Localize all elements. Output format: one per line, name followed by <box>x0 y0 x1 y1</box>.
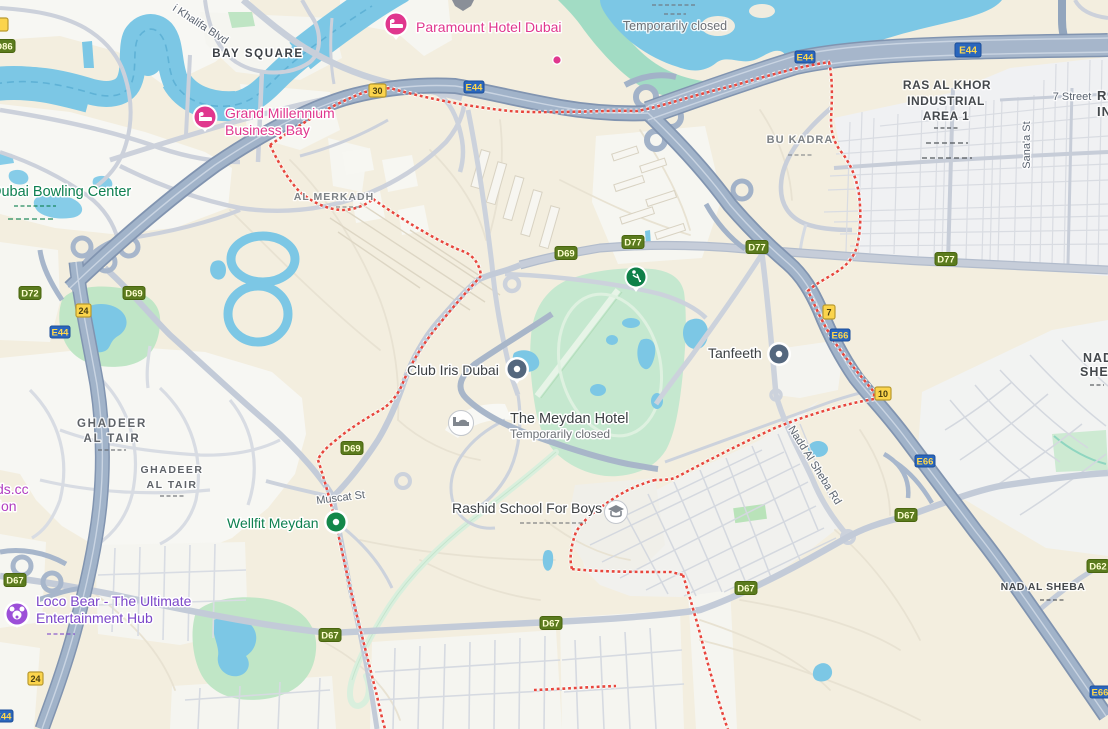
svg-text:Wellfit Meydan: Wellfit Meydan <box>227 515 319 531</box>
svg-text:GHADEER: GHADEER <box>77 418 147 430</box>
svg-text:E66: E66 <box>832 331 849 342</box>
svg-text:IN: IN <box>1097 104 1108 119</box>
svg-text:D86: D86 <box>0 42 13 53</box>
svg-text:Dubai Bowling Center: Dubai Bowling Center <box>0 184 131 200</box>
svg-text:E44: E44 <box>52 328 70 339</box>
svg-text:Rashid School For Boys: Rashid School For Boys <box>452 500 602 516</box>
svg-text:Sana'a St: Sana'a St <box>1021 121 1033 168</box>
svg-text:D67: D67 <box>542 619 559 630</box>
svg-text:D67: D67 <box>6 576 23 587</box>
svg-text:BAY SQUARE: BAY SQUARE <box>212 48 303 60</box>
svg-text:E66: E66 <box>1092 688 1108 699</box>
svg-text:Paramount Hotel Dubai: Paramount Hotel Dubai <box>416 19 562 35</box>
svg-text:BU KADRA: BU KADRA <box>767 134 834 146</box>
svg-text:24: 24 <box>78 306 88 316</box>
svg-text:D77: D77 <box>748 243 765 254</box>
svg-text:D77: D77 <box>624 238 641 249</box>
svg-text:Club Iris Dubai: Club Iris Dubai <box>407 362 499 378</box>
svg-text:D69: D69 <box>125 289 142 300</box>
svg-text:Temporarily closed: Temporarily closed <box>623 19 727 33</box>
svg-text:Loco Bear - The Ultimate: Loco Bear - The Ultimate <box>36 593 192 609</box>
svg-text:Entertainment Hub: Entertainment Hub <box>36 610 153 626</box>
svg-text:Tanfeeth: Tanfeeth <box>708 345 762 361</box>
svg-text:E44: E44 <box>0 712 12 723</box>
svg-text:10: 10 <box>878 389 888 399</box>
svg-text:GHADEER: GHADEER <box>140 464 203 476</box>
svg-text:AL TAIR: AL TAIR <box>147 479 198 491</box>
svg-text:7: 7 <box>826 308 831 318</box>
svg-text:Grand Millennium: Grand Millennium <box>225 105 335 121</box>
svg-text:D69: D69 <box>557 249 574 260</box>
svg-text:E44: E44 <box>466 83 484 94</box>
svg-text:D67: D67 <box>897 511 914 522</box>
svg-text:E44: E44 <box>959 46 977 57</box>
svg-text:ds.cc: ds.cc <box>0 481 29 497</box>
svg-text:INDUSTRIAL: INDUSTRIAL <box>907 94 985 108</box>
svg-text:E66: E66 <box>917 457 934 468</box>
svg-text:NAD AL SHEBA: NAD AL SHEBA <box>1001 581 1086 593</box>
svg-text:D67: D67 <box>737 584 754 595</box>
svg-text:D67: D67 <box>321 631 338 642</box>
svg-text:RA: RA <box>1097 88 1108 103</box>
svg-text:The Meydan Hotel: The Meydan Hotel <box>510 411 628 427</box>
svg-text:D69: D69 <box>343 444 360 455</box>
svg-text:D72: D72 <box>21 289 38 300</box>
svg-text:NAD: NAD <box>1083 351 1108 365</box>
svg-text:Temporarily closed: Temporarily closed <box>510 427 610 441</box>
svg-text:30: 30 <box>372 86 382 96</box>
svg-text:E44: E44 <box>797 53 815 64</box>
svg-text:tion: tion <box>0 498 17 514</box>
svg-text:AL TAIR: AL TAIR <box>84 433 141 445</box>
svg-text:D77: D77 <box>937 255 954 266</box>
svg-text:Business Bay: Business Bay <box>225 122 310 138</box>
svg-text:D62: D62 <box>1089 562 1106 573</box>
svg-text:RAS AL KHOR: RAS AL KHOR <box>903 78 991 92</box>
svg-text:AL MERKADH: AL MERKADH <box>294 191 374 203</box>
svg-text:SHEB: SHEB <box>1080 365 1108 379</box>
svg-text:24: 24 <box>30 674 40 684</box>
svg-text:7 Street: 7 Street <box>1053 91 1092 103</box>
svg-text:AREA 1: AREA 1 <box>923 109 970 123</box>
